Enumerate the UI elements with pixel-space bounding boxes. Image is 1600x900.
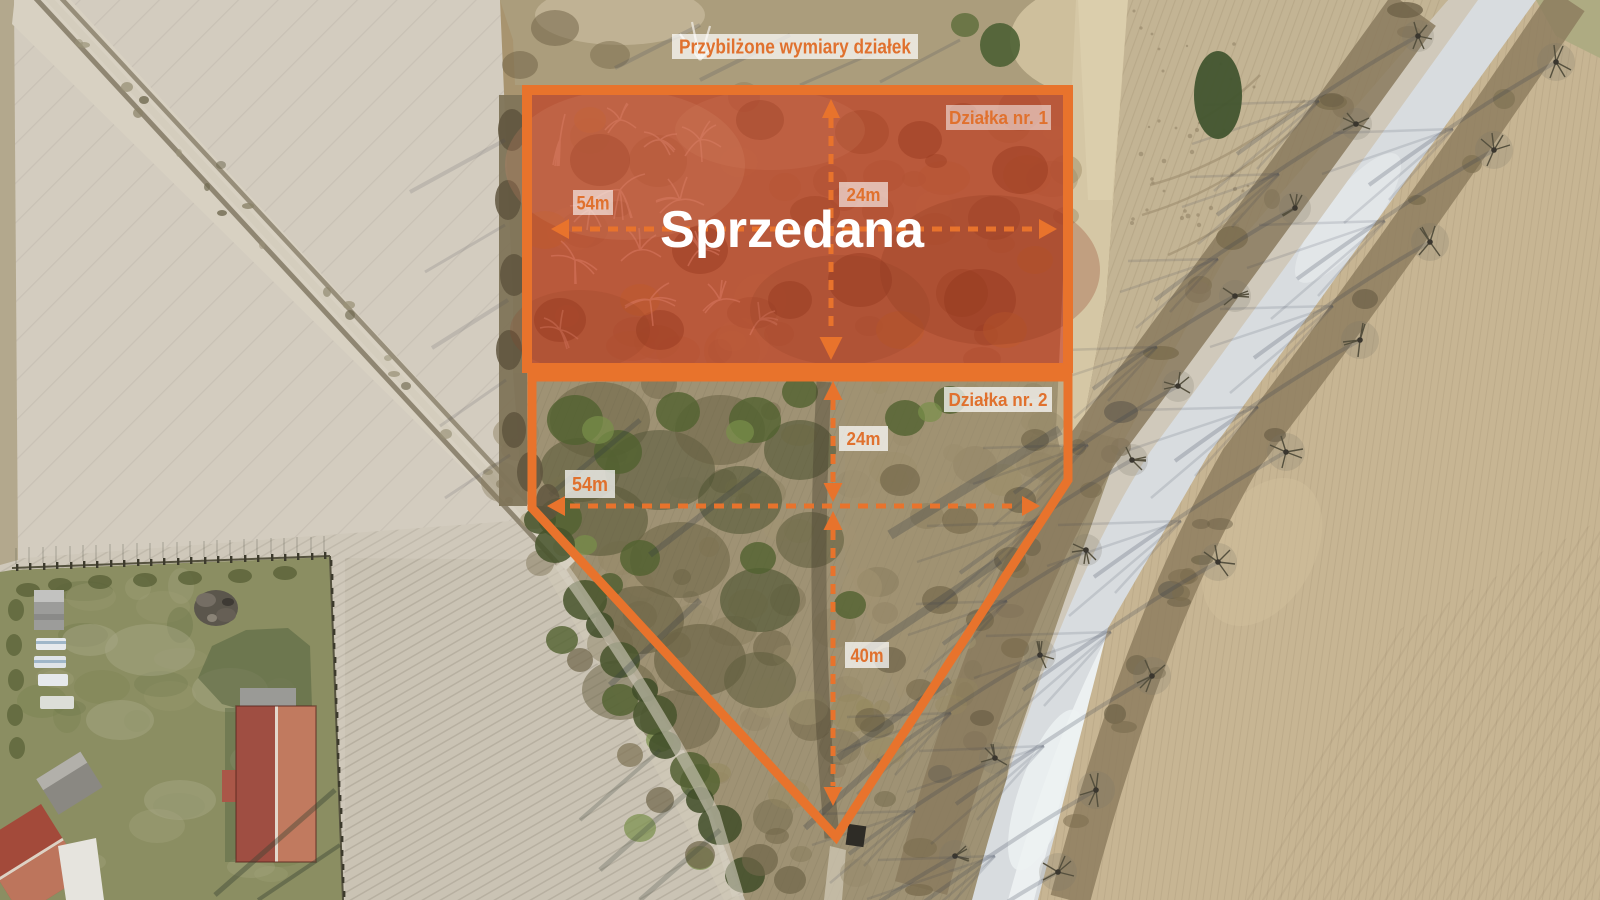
- svg-text:24m: 24m: [847, 429, 881, 449]
- svg-text:Sprzedana: Sprzedana: [660, 201, 925, 259]
- svg-text:40m: 40m: [851, 646, 884, 667]
- svg-text:54m: 54m: [577, 193, 610, 214]
- svg-text:Działka nr. 1: Działka nr. 1: [949, 108, 1048, 128]
- svg-text:54m: 54m: [572, 474, 608, 496]
- svg-text:Działka nr. 2: Działka nr. 2: [949, 390, 1048, 410]
- svg-text:Przybilżone wymiary działek: Przybilżone wymiary działek: [679, 37, 912, 59]
